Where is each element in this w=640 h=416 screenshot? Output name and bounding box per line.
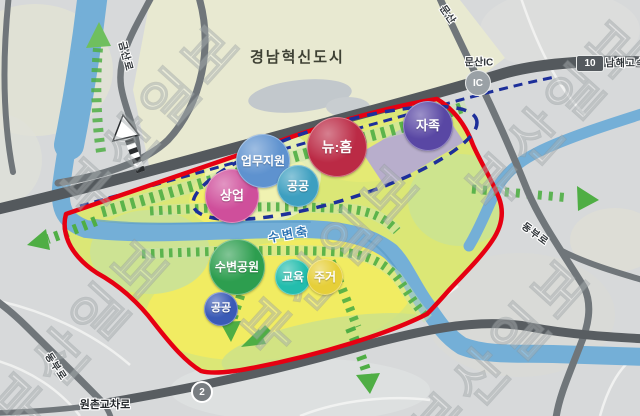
green-arrow-west <box>27 229 50 250</box>
map-canvas <box>0 0 640 416</box>
planning-map: 부산일보부산일보부산일보부산일보부산일보 상업업무지원공공뉴:홈자족수변공원교육… <box>0 0 640 416</box>
green-arrow-east <box>577 186 599 211</box>
